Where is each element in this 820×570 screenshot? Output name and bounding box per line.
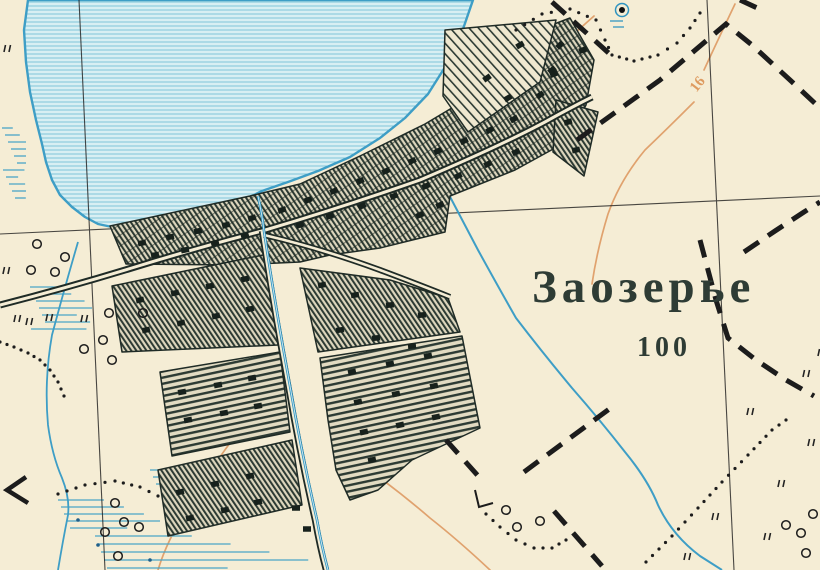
building-symbol <box>336 327 345 334</box>
settlement-name-label: Заозерье <box>532 261 755 313</box>
topographic-map: Заозерье 100 16 <box>0 0 820 570</box>
building-symbol <box>386 302 395 308</box>
building-symbol <box>292 505 300 511</box>
building-symbol <box>408 343 416 349</box>
households-count-label: 100 <box>637 332 691 363</box>
building-symbol <box>351 292 360 299</box>
building-symbol <box>418 312 426 318</box>
building-symbol <box>303 526 311 532</box>
building-symbol <box>372 335 381 341</box>
spring-dot <box>619 7 625 13</box>
map-canvas: Заозерье 100 16 <box>0 0 820 570</box>
